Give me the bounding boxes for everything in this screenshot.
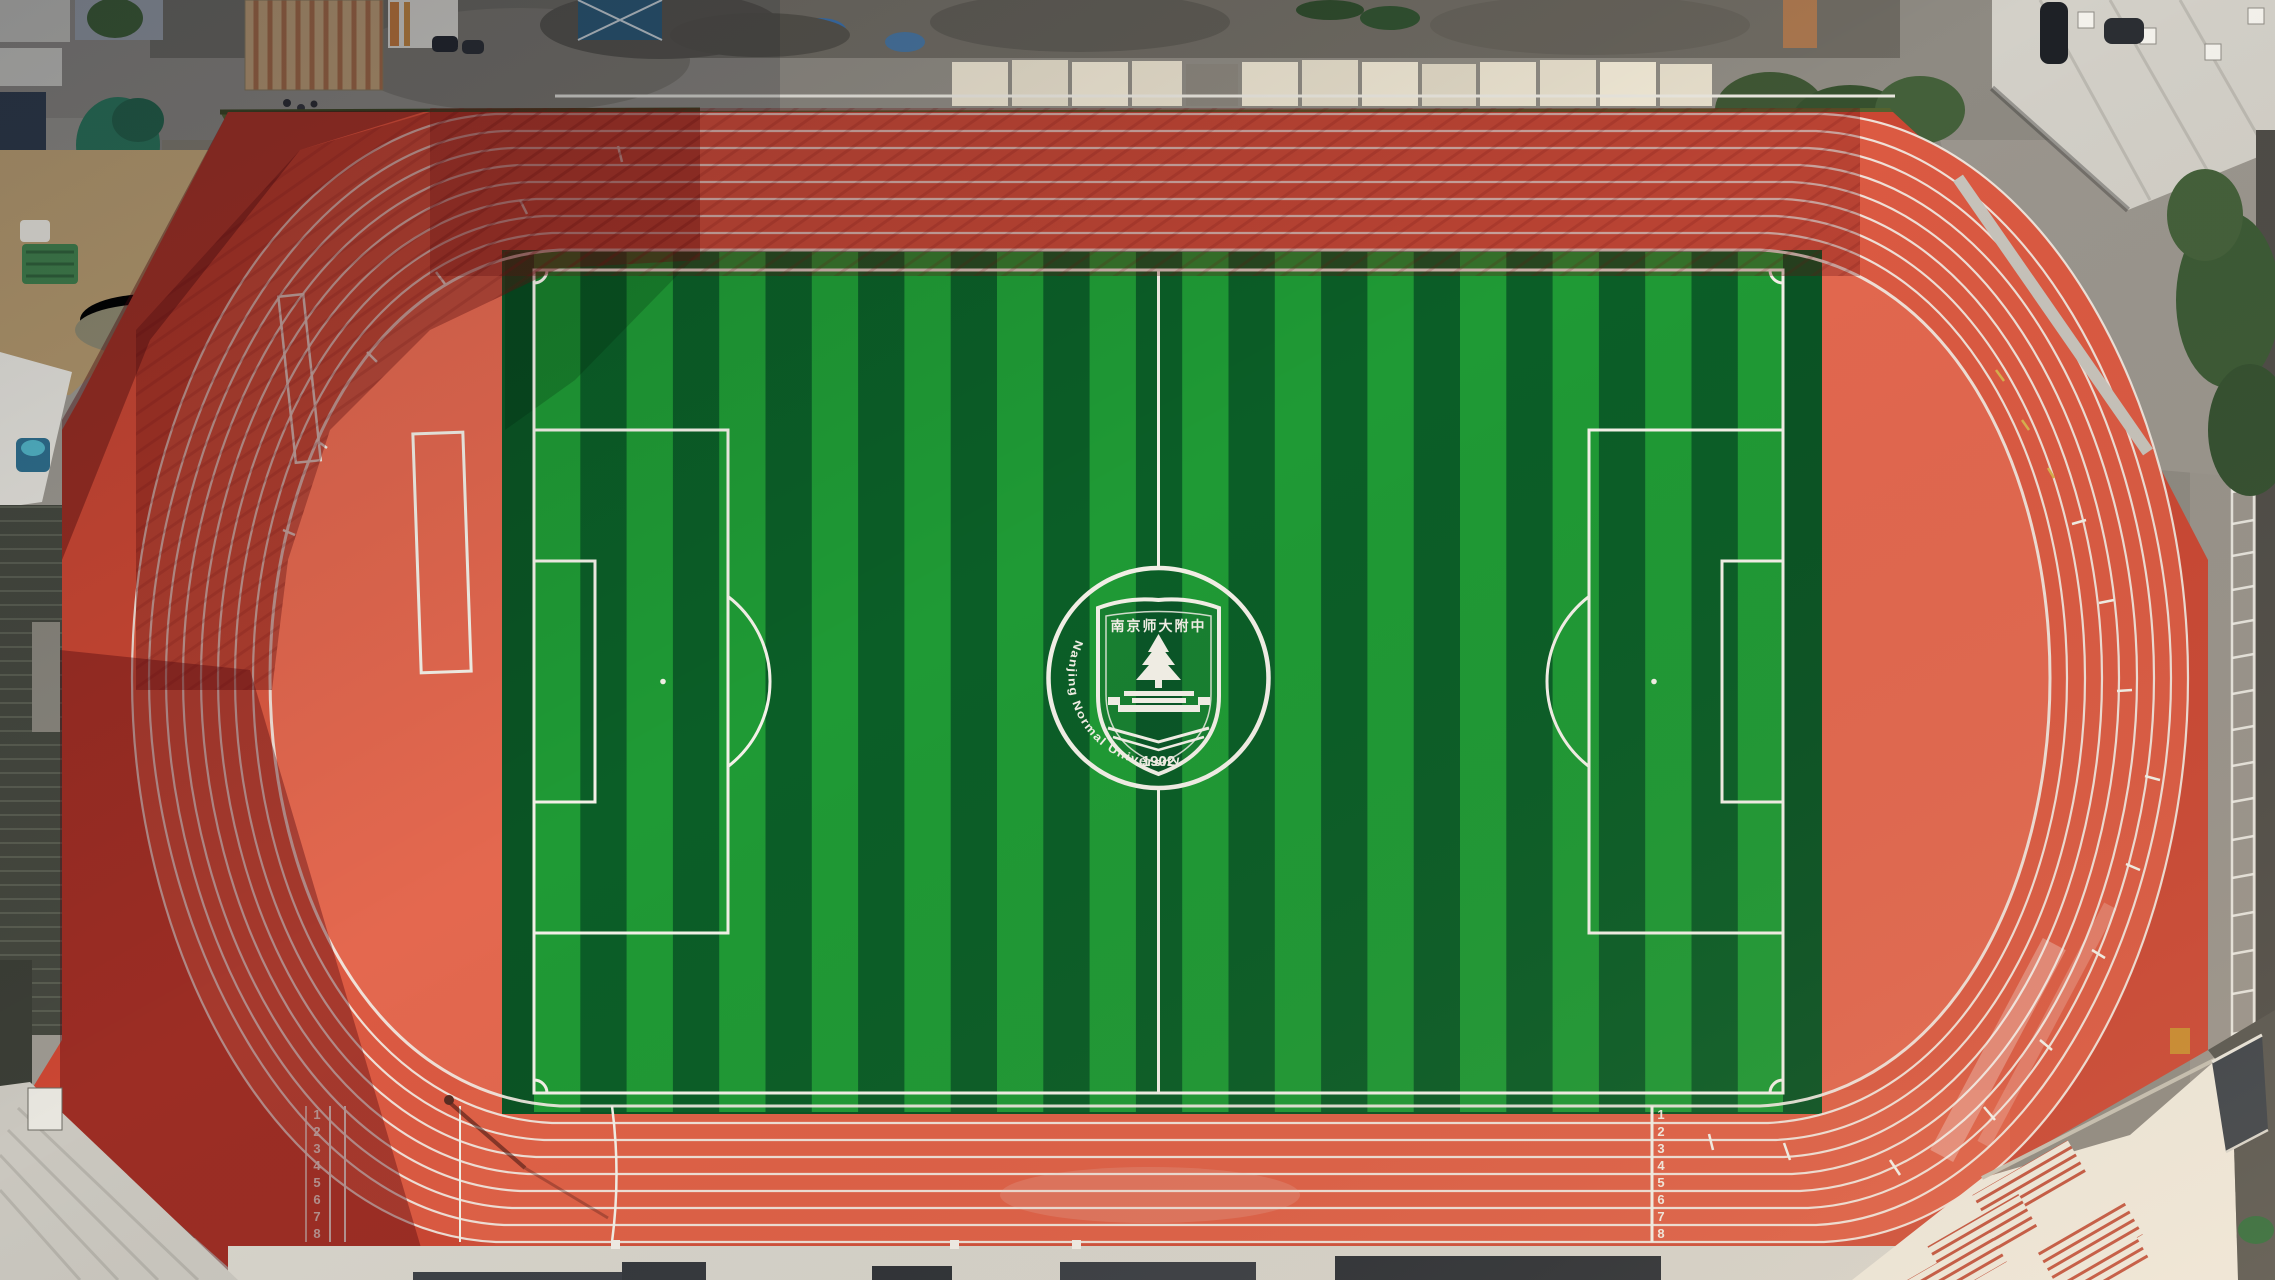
photo-color-grade — [0, 0, 2275, 1280]
aerial-stadium-photo: 南京师大附中 1902 High School Affiliated To Na… — [0, 0, 2275, 1280]
stadium-scene: 南京师大附中 1902 High School Affiliated To Na… — [0, 0, 2275, 1280]
